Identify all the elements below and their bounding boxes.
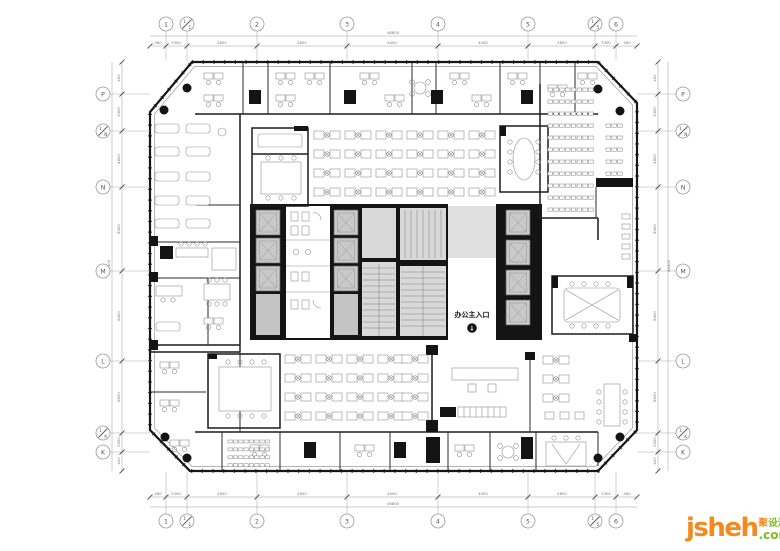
office-lower-right <box>543 356 627 426</box>
grid-bubble-top-4: 4 <box>431 17 445 31</box>
svg-text:4000: 4000 <box>478 40 488 45</box>
svg-text:1: 1 <box>99 428 102 433</box>
svg-text:3300: 3300 <box>171 491 181 496</box>
svg-text:400: 400 <box>652 74 657 82</box>
grid-bubble-bottom-3: 3 <box>340 514 354 528</box>
svg-text:5: 5 <box>526 518 530 525</box>
svg-text:3300: 3300 <box>652 107 657 117</box>
open-office-lower <box>285 355 428 420</box>
dims-top: 4603300 48504850 40004000 48503300 460 <box>154 40 631 45</box>
svg-text:6600: 6600 <box>116 392 121 402</box>
svg-text:4850: 4850 <box>297 491 307 496</box>
svg-text:P: P <box>101 91 105 98</box>
svg-text:400: 400 <box>116 457 121 465</box>
grid-bubble-right-Ka: 1K <box>676 426 690 440</box>
svg-text:3300: 3300 <box>171 40 181 45</box>
svg-text:1: 1 <box>679 126 682 131</box>
svg-text:N: N <box>681 184 686 191</box>
svg-text:6: 6 <box>614 21 618 28</box>
svg-text:L: L <box>101 358 105 365</box>
svg-text:6: 6 <box>614 518 618 525</box>
svg-text:5: 5 <box>596 25 599 30</box>
svg-text:3300: 3300 <box>601 40 611 45</box>
svg-text:5: 5 <box>526 21 530 28</box>
svg-text:M: M <box>100 268 105 275</box>
svg-text:N: N <box>104 132 107 137</box>
dim-overall-top: 46800 <box>387 30 400 35</box>
svg-text:2: 2 <box>255 21 259 28</box>
grid-bubble-left-K: K <box>96 445 110 459</box>
svg-text:460: 460 <box>154 40 162 45</box>
svg-text:2: 2 <box>255 518 259 525</box>
grid-bubble-bottom-6: 6 <box>609 514 623 528</box>
toilet-core <box>286 206 330 338</box>
grid-bubble-right-Na: 1N <box>676 124 690 138</box>
grid-bubble-bottom-4: 4 <box>431 514 445 528</box>
svg-text:4000: 4000 <box>387 491 397 496</box>
grid-bubble-bottom-5: 5 <box>521 514 535 528</box>
svg-text:6600: 6600 <box>652 392 657 402</box>
svg-text:2000: 2000 <box>116 437 121 447</box>
svg-text:M: M <box>680 268 685 275</box>
svg-text:5: 5 <box>596 522 599 527</box>
svg-text:2000: 2000 <box>652 437 657 447</box>
svg-text:1: 1 <box>591 516 594 521</box>
dim-overall-bottom: 46800 <box>387 501 400 506</box>
watermark-logo: jsheh 聚设汇 .com <box>686 515 780 541</box>
svg-text:N: N <box>101 184 106 191</box>
grid-bubble-top-1a: 11 <box>180 17 194 31</box>
grid-bubble-top-6: 6 <box>609 17 623 31</box>
core <box>250 204 542 340</box>
svg-text:3: 3 <box>345 518 349 525</box>
grid-bubble-left-P: P <box>96 87 110 101</box>
grid-bubble-bottom-5a: 15 <box>588 514 602 528</box>
svg-text:4000: 4000 <box>478 491 488 496</box>
grid-bubble-right-M: M <box>676 264 690 278</box>
grid-bubble-top-2: 2 <box>250 17 264 31</box>
svg-text:8400: 8400 <box>652 224 657 234</box>
svg-text:3: 3 <box>345 21 349 28</box>
svg-text:460: 460 <box>154 491 162 496</box>
svg-text:1: 1 <box>188 25 191 30</box>
svg-text:460: 460 <box>623 40 631 45</box>
grid-bubble-right-K: K <box>676 445 690 459</box>
reception <box>440 368 518 417</box>
svg-text:3300: 3300 <box>116 107 121 117</box>
svg-text:400: 400 <box>116 74 121 82</box>
svg-text:L: L <box>681 358 685 365</box>
svg-text:1: 1 <box>679 428 682 433</box>
grid-bubble-top-5: 5 <box>521 17 535 31</box>
svg-text:8400: 8400 <box>116 311 121 321</box>
grid-bubble-left-M: M <box>96 264 110 278</box>
grid-bubble-top-1: 1 <box>159 17 173 31</box>
grid-bubble-left-N: N <box>96 180 110 194</box>
svg-text:4000: 4000 <box>387 40 397 45</box>
svg-text:4800: 4800 <box>116 154 121 164</box>
stair-core <box>362 208 446 336</box>
grid-bubble-top-5a: 15 <box>588 17 602 31</box>
grid-bubble-bottom-1a: 11 <box>180 514 194 528</box>
svg-text:1: 1 <box>99 126 102 131</box>
svg-text:N: N <box>684 132 687 137</box>
grid-bubble-left-Na: 1N <box>96 124 110 138</box>
svg-text:4850: 4850 <box>557 40 567 45</box>
training-room-seats <box>548 88 622 211</box>
svg-text:1: 1 <box>183 516 186 521</box>
grid-bubble-left-L: L <box>96 354 110 368</box>
dim-overall-right: 44400 <box>666 259 671 272</box>
svg-text:3300: 3300 <box>601 491 611 496</box>
watermark-tld-text: .com <box>759 529 780 541</box>
svg-text:460: 460 <box>623 491 631 496</box>
theatre-seats <box>228 440 270 467</box>
svg-text:4850: 4850 <box>217 40 227 45</box>
open-office-upper <box>314 131 495 196</box>
svg-text:↓: ↓ <box>469 325 474 333</box>
svg-text:1: 1 <box>164 21 168 28</box>
grid-bubble-bottom-1: 1 <box>159 514 173 528</box>
grid-bubble-right-P: P <box>676 87 690 101</box>
svg-text:4850: 4850 <box>297 40 307 45</box>
svg-text:1: 1 <box>183 19 186 24</box>
svg-text:8400: 8400 <box>116 224 121 234</box>
svg-text:1: 1 <box>591 19 594 24</box>
svg-text:400: 400 <box>652 457 657 465</box>
svg-text:K: K <box>104 434 107 439</box>
svg-text:K: K <box>684 434 687 439</box>
entrance-label: 办公主入口 <box>455 310 490 319</box>
floor-plan-screenshot: 46800 46800 44400 44400 4603300 48504850… <box>0 0 780 551</box>
grid-bubble-bottom-2: 2 <box>250 514 264 528</box>
watermark-brand-text: jsheh <box>686 515 758 541</box>
svg-text:8400: 8400 <box>652 311 657 321</box>
svg-text:1: 1 <box>188 522 191 527</box>
svg-text:4850: 4850 <box>217 491 227 496</box>
svg-text:4: 4 <box>436 518 440 525</box>
grid-bubble-left-Ka: 1K <box>96 426 110 440</box>
floor-plan-canvas: 46800 46800 44400 44400 4603300 48504850… <box>0 0 780 551</box>
grid-bubble-right-L: L <box>676 354 690 368</box>
svg-text:4850: 4850 <box>557 491 567 496</box>
svg-text:P: P <box>681 91 685 98</box>
grid-bubble-top-3: 3 <box>340 17 354 31</box>
grid-bubble-right-N: N <box>676 180 690 194</box>
svg-text:1: 1 <box>164 518 168 525</box>
lounge-sofas <box>155 124 226 228</box>
dims-bottom: 4603300 48504850 40004000 48503300 460 <box>154 491 631 496</box>
svg-text:4800: 4800 <box>652 154 657 164</box>
svg-text:4: 4 <box>436 21 440 28</box>
